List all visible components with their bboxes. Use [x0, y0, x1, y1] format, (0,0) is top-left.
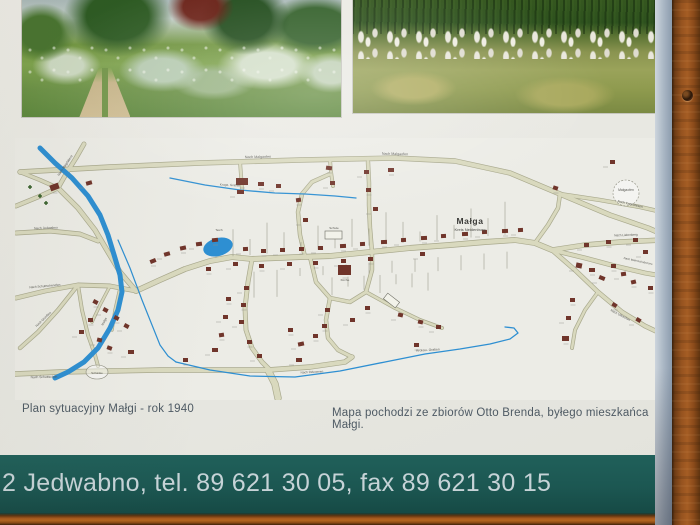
svg-text:Schänke: Schänke — [91, 371, 103, 375]
malga-village-map: Nach MalgaofenNach MalgaofenMalgaofenNac… — [15, 138, 662, 400]
contact-text: 2 Jedwabno, tel. 89 621 30 05, fax 89 62… — [2, 469, 551, 498]
cranes-in-meadow-photo — [353, 0, 656, 113]
board-background: Nach MalgaofenNach MalgaofenMalgaofenNac… — [0, 0, 700, 525]
svg-text:Nach Jedwabno: Nach Jedwabno — [34, 226, 58, 231]
svg-text:Schule: Schule — [329, 226, 339, 230]
svg-text:Kirche: Kirche — [341, 278, 350, 282]
board-metal-edge — [655, 0, 672, 525]
screw-icon — [682, 90, 693, 101]
svg-text:Nach Malgaofen: Nach Malgaofen — [382, 152, 408, 156]
flower-speckle-overlay — [22, 44, 341, 81]
bottom-frame-edge — [0, 513, 672, 525]
svg-text:Nach Schuttschen: Nach Schuttschen — [31, 375, 58, 379]
wooden-frame — [672, 0, 700, 525]
flowering-landscape-photo — [22, 0, 341, 117]
birds-overlay — [353, 27, 656, 59]
svg-text:Kreis Neidenburg: Kreis Neidenburg — [455, 227, 486, 232]
svg-text:Małga: Małga — [456, 216, 483, 226]
photographed-information-board: Nach MalgaofenNach MalgaofenMalgaofenNac… — [0, 0, 700, 525]
svg-text:Malgaofen: Malgaofen — [618, 188, 634, 192]
svg-text:Nach Malgaofen: Nach Malgaofen — [245, 155, 271, 159]
map-caption-right: Mapa pochodzi ze zbiorów Otto Brenda, by… — [332, 407, 662, 431]
svg-text:Teich: Teich — [215, 228, 223, 232]
contact-footer-bar: 2 Jedwabno, tel. 89 621 30 05, fax 89 62… — [0, 455, 662, 513]
map-caption-left: Plan sytuacyjny Małgi - rok 1940 — [22, 403, 194, 415]
wood-grain — [672, 0, 700, 525]
svg-text:Nach Liebenberg: Nach Liebenberg — [614, 233, 638, 238]
